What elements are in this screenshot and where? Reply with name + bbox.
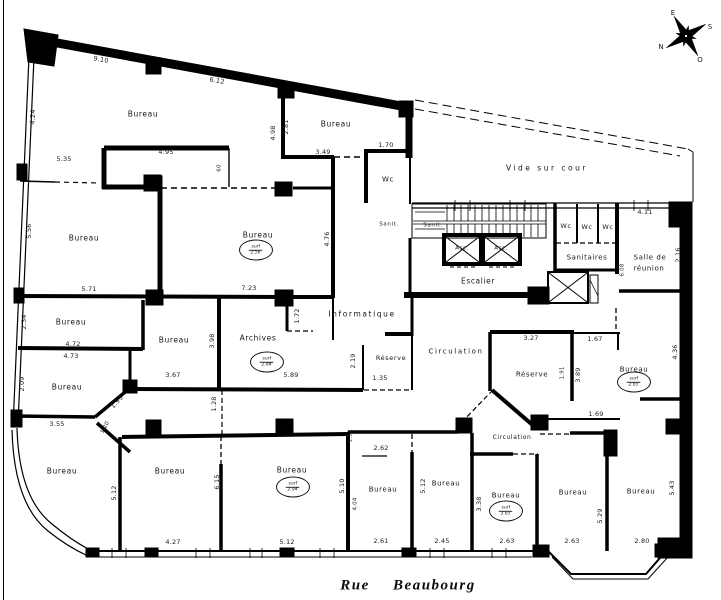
dim-5-12-b: 5.12 — [279, 539, 294, 546]
room-salle-reunion-l1: Salle de — [634, 255, 667, 262]
dim-2-45: 2.45 — [434, 538, 449, 545]
dim-5-29: 5.29 — [597, 508, 604, 523]
room-bureau-top-left: Bureau — [128, 110, 158, 118]
room-bureau-bot-5: Bureau — [492, 493, 521, 500]
badge-bureau-bot-center-line2: 2.94 — [286, 487, 300, 493]
dim-2-63-b: 2.63 — [564, 538, 579, 545]
badge-bureau-bot-5-line2: 3.65 — [499, 511, 513, 517]
dim-2-09: 2.09 — [19, 376, 26, 391]
dim-5-56: 5.56 — [26, 223, 33, 238]
dim-4-73: 4.73 — [63, 353, 78, 360]
dim-6-15: 6.15 — [214, 474, 221, 489]
dim-3-67: 3.67 — [165, 372, 180, 379]
dim-1-35: 1.35 — [372, 375, 387, 382]
room-bureau-bl-1: Bureau — [47, 467, 77, 475]
dim-4-27: 4.27 — [165, 539, 180, 546]
interior-walls — [14, 88, 681, 551]
badge-archives-line2: 2.84 — [260, 362, 274, 368]
room-bureau-left-1: Bureau — [69, 234, 99, 242]
dim-5-12-a: 5.12 — [111, 485, 118, 500]
dim-3-38: 3.38 — [476, 496, 483, 511]
dim-4-98: 4.98 — [270, 125, 277, 140]
room-sanit-2: Sanit. — [423, 223, 442, 229]
dim-4-95: 4.95 — [158, 149, 173, 156]
floor-plan: BureauBureauWcVide sur courBureauBureauE… — [0, 0, 721, 600]
room-reserve-1: Réserve — [516, 372, 548, 379]
dim-3-55: 3.55 — [49, 421, 64, 428]
walls-svg — [0, 0, 721, 600]
dim-2-63-a: 2.63 — [499, 538, 514, 545]
badge-bureau-right: surf2.65 — [617, 372, 651, 393]
dim-5-10: 5.10 — [339, 478, 346, 493]
dim-5-43: 5.43 — [669, 480, 676, 495]
compass-letter-e: E — [671, 9, 675, 17]
dim-5-89: 5.89 — [283, 372, 298, 379]
dim-2-61: 2.61 — [373, 538, 388, 545]
dim-1-67: 1.67 — [587, 336, 602, 343]
badge-archives: surf2.84 — [250, 352, 284, 373]
dim-1-28: 1.28 — [211, 396, 218, 411]
room-wc-3: Wc — [602, 224, 613, 231]
dim-4-24: 4.24 — [29, 109, 36, 125]
room-salle-reunion-l2: réunion — [634, 266, 665, 273]
dim-7-23: 7.23 — [241, 285, 256, 292]
badge-bureau-center: surf2.56 — [239, 240, 273, 261]
badge-bureau-bot-center: surf2.94 — [276, 477, 310, 498]
room-bureau-bl-2: Bureau — [155, 467, 185, 475]
room-escalier: Escalier — [461, 277, 495, 285]
room-bureau-left-3: Bureau — [52, 383, 82, 391]
room-wc-top: Wc — [382, 177, 394, 184]
compass-letter-o: O — [697, 56, 703, 64]
room-circulation-1: Circulation — [428, 349, 483, 356]
dim-4-11: 4.11 — [637, 209, 652, 216]
room-informatique: Informatique — [328, 310, 395, 318]
room-bureau-mid: Bureau — [159, 336, 189, 344]
room-bureau-bot-4: Bureau — [432, 481, 461, 488]
dim-2-34: 2.34 — [21, 314, 28, 329]
dim-4-36: 4.36 — [672, 344, 679, 359]
room-archives: Archives — [240, 334, 277, 342]
room-bureau-bot-6: Bureau — [559, 490, 588, 497]
room-bureau-top-mid: Bureau — [321, 120, 351, 128]
dim-3-98: 3.98 — [209, 333, 216, 348]
dim-4-76: 4.76 — [324, 231, 331, 246]
dim-2-19: 2.19 — [350, 353, 357, 368]
badge-archives-line1: surf — [263, 356, 272, 361]
dim-1-72: 1.72 — [294, 308, 301, 323]
badge-bureau-center-line2: 2.56 — [249, 250, 263, 256]
dim-3-27: 3.27 — [523, 335, 538, 342]
street-name: Rue Beaubourg — [340, 578, 475, 595]
room-bureau-center: Bureau — [243, 231, 273, 239]
room-wc-1: Wc — [560, 223, 571, 230]
dim-3-89: 3.89 — [575, 367, 582, 382]
dim-2-62: 2.62 — [373, 445, 388, 452]
room-bureau-left-2: Bureau — [56, 318, 86, 326]
dim-4-72: 4.72 — [65, 341, 80, 348]
compass-letter-n: N — [658, 43, 663, 51]
badge-bureau-right-line1: surf — [630, 376, 639, 381]
dim-5-35: 5.35 — [56, 156, 71, 163]
dim-2-16: 2.16 — [675, 247, 682, 262]
badge-bureau-bot-center-line1: surf — [289, 481, 298, 486]
dim-5-12-c: 5.12 — [420, 478, 427, 493]
vide-sur-cour: Vide sur cour — [506, 164, 588, 172]
dim-1-70: 1.70 — [378, 142, 393, 149]
room-reserve-2: Réserve — [376, 355, 406, 362]
room-sanitaires: Sanitaires — [567, 255, 608, 262]
compass-letter-s: S — [708, 23, 712, 31]
dim-5-71: 5.71 — [81, 286, 96, 293]
dim-6-08: 6.08 — [620, 263, 626, 276]
dim-1-69: 1.69 — [588, 411, 603, 418]
dim-2-81: 2.81 — [283, 119, 290, 134]
dim-60: 60 — [217, 164, 223, 171]
badge-bureau-right-line2: 2.65 — [627, 382, 641, 388]
dim-4-04: 4.04 — [353, 497, 359, 510]
badge-bureau-bot-5: surf3.65 — [489, 501, 523, 522]
dim-2-80: 2.80 — [634, 538, 649, 545]
room-asc-1: Asc. — [455, 246, 469, 252]
badge-bureau-bot-5-line1: surf — [502, 505, 511, 510]
room-bureau-bot-3: Bureau — [369, 487, 398, 494]
room-sanit-1: Sanit. — [379, 222, 398, 228]
dim-3-49: 3.49 — [315, 149, 330, 156]
badge-bureau-center-line1: surf — [252, 244, 261, 249]
dim-1-91: 1.91 — [560, 366, 566, 379]
room-wc-2: Wc — [581, 224, 592, 231]
compass-rose-icon — [665, 15, 706, 56]
stairs — [412, 204, 546, 238]
room-bureau-bot-7: Bureau — [627, 489, 656, 496]
dim-1-51: 1.51 — [348, 429, 354, 442]
room-circulation-2: Circulation — [493, 435, 532, 441]
room-asc-2: Asc. — [494, 246, 508, 252]
room-bureau-bot-center: Bureau — [277, 466, 307, 474]
